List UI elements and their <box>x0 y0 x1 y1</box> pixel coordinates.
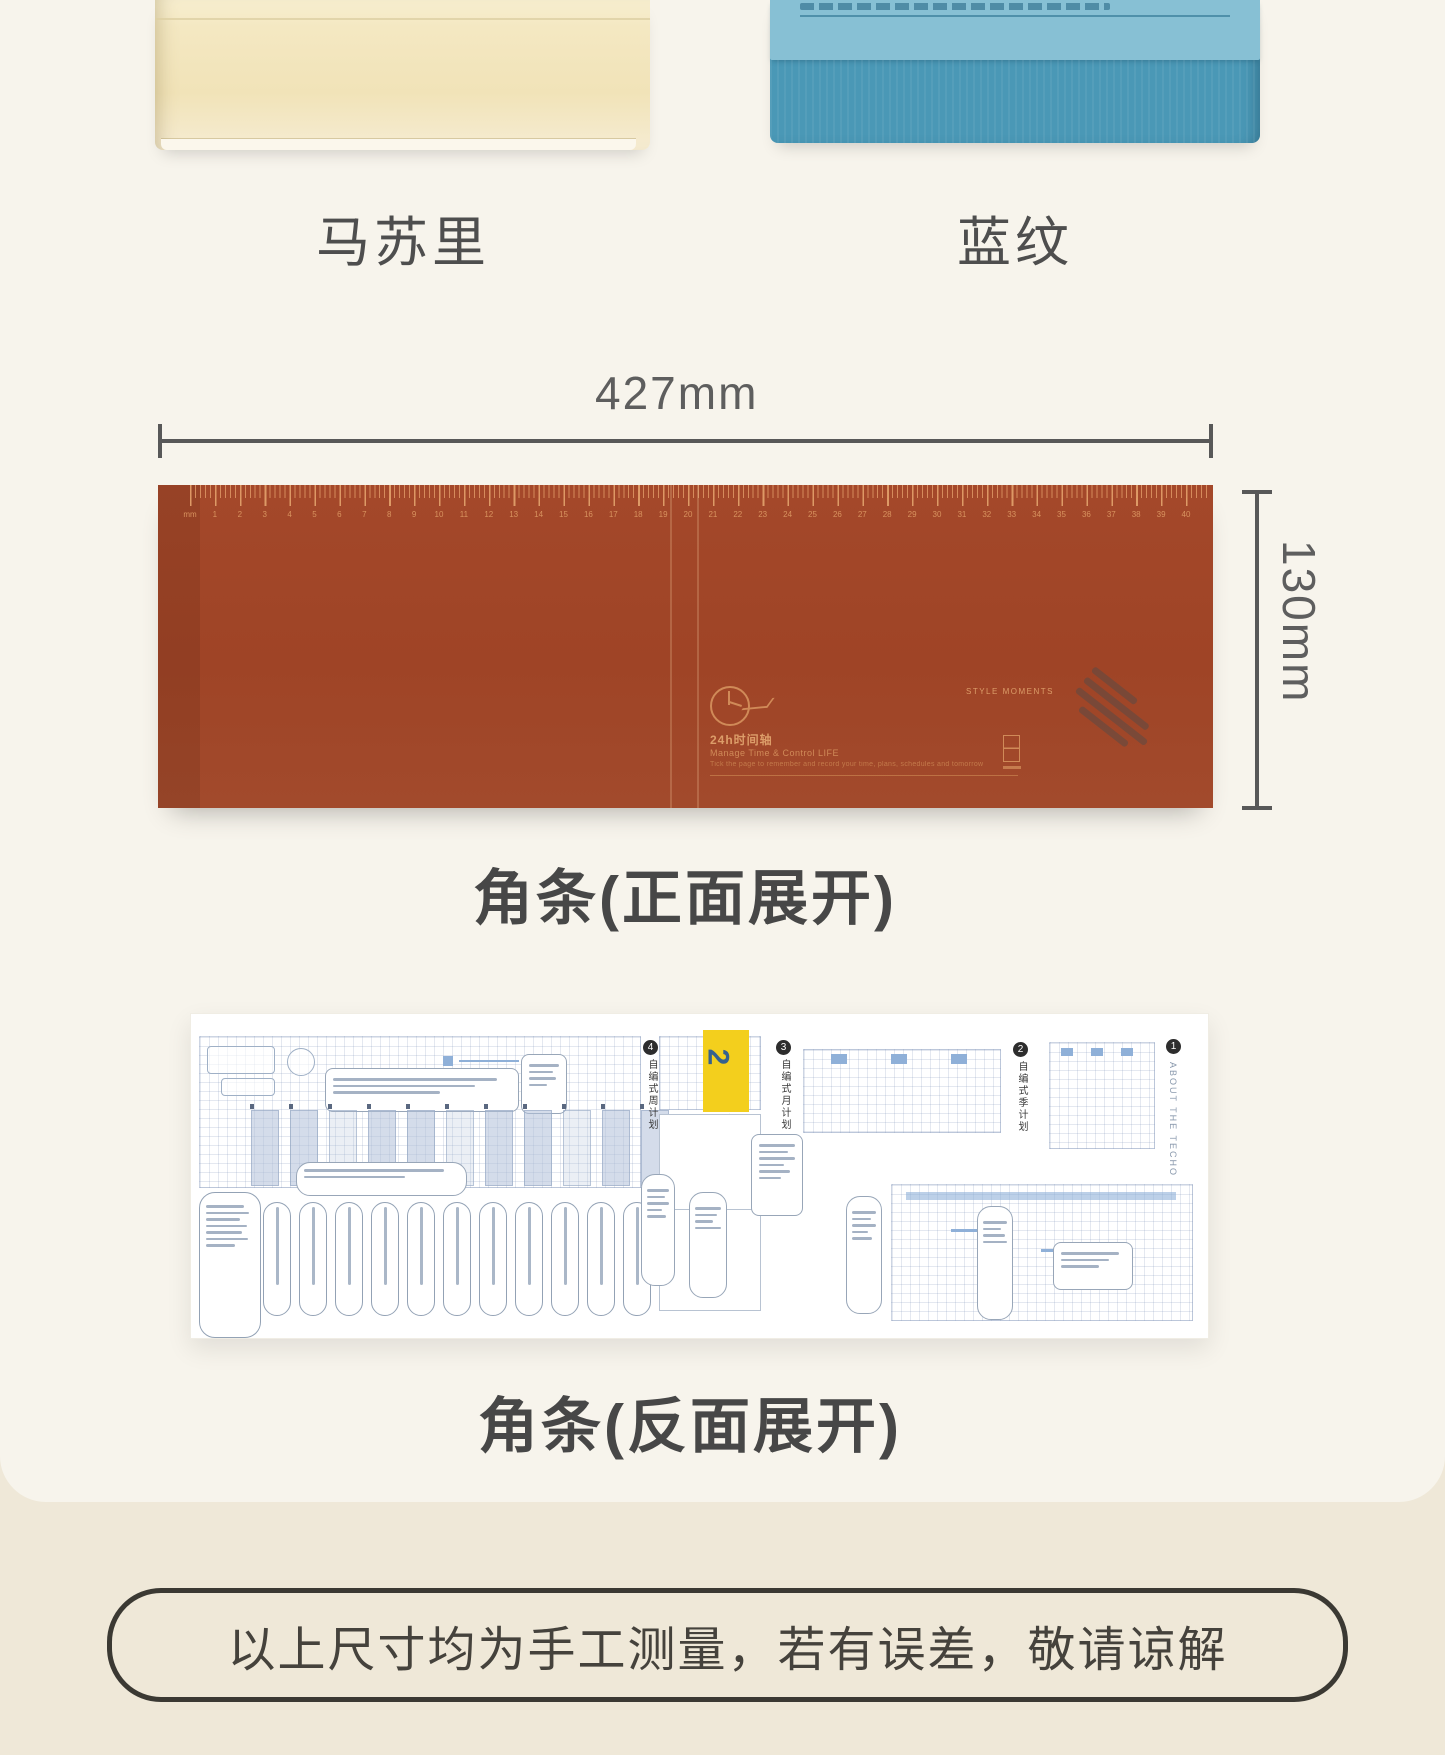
ruler-number: 15 <box>559 510 568 519</box>
sketch-box <box>207 1046 275 1074</box>
dots-row <box>250 1104 682 1109</box>
dimension-cap <box>1242 806 1272 810</box>
cover-crease <box>155 18 650 20</box>
table-header-mark <box>891 1054 907 1064</box>
ruler-number: 11 <box>460 510 468 519</box>
width-dimension-line <box>158 439 1213 443</box>
sketch-mark <box>443 1056 453 1066</box>
notebook-cream-photo <box>155 0 650 150</box>
ruler-number: 22 <box>733 510 742 519</box>
ruler-number: 16 <box>584 510 593 519</box>
tab-number: 2 <box>700 1049 734 1066</box>
sketch-circle <box>287 1048 315 1076</box>
callout-bubble <box>296 1162 467 1196</box>
schedule-column <box>602 1110 630 1186</box>
dimension-cap <box>158 424 162 458</box>
brand-seal-icon <box>1003 735 1020 762</box>
index-pill <box>263 1202 291 1316</box>
fold-line <box>697 485 699 808</box>
ruler-number: 31 <box>957 510 966 519</box>
ruler-number: 26 <box>833 510 842 519</box>
table-header-mark <box>831 1054 847 1064</box>
sketch-mark <box>459 1060 519 1062</box>
ruler-number: 38 <box>1132 510 1141 519</box>
ruler-number: 27 <box>858 510 867 519</box>
color-name-blue: 蓝纹 <box>865 198 1165 277</box>
sketch-box <box>221 1078 275 1096</box>
gray-stamp-watermark <box>1046 661 1169 783</box>
ruler-number: 34 <box>1032 510 1041 519</box>
table-header-mark <box>1091 1048 1103 1056</box>
index-pill <box>299 1202 327 1316</box>
ruler-number: 23 <box>758 510 767 519</box>
ruler-number: 9 <box>412 510 416 519</box>
ruler-number: 2 <box>238 510 242 519</box>
height-dimension-label: 130mm <box>1272 540 1326 703</box>
strip-brand-text: STYLE MOMENTS <box>966 687 1054 696</box>
callout-bubble <box>1053 1242 1133 1290</box>
notebook-blue-photo <box>770 0 1260 143</box>
ruler-number: 35 <box>1057 510 1066 519</box>
index-pill <box>407 1202 435 1316</box>
ruler-number: 30 <box>933 510 942 519</box>
ruler-number: mm <box>183 510 196 519</box>
vertical-callout <box>846 1196 882 1314</box>
ruler-number: 21 <box>708 510 717 519</box>
cover-flap <box>770 0 1260 60</box>
right-table-panel <box>1049 1042 1155 1149</box>
bottom-table-panel <box>891 1184 1193 1321</box>
ruler-number: 39 <box>1157 510 1166 519</box>
back-strip-caption: 角条(反面展开) <box>340 1378 1040 1465</box>
flap-print-line <box>800 15 1230 17</box>
ruler-number: 6 <box>337 510 341 519</box>
strip-fold-shade <box>158 485 200 808</box>
vertical-callout <box>641 1174 675 1286</box>
ruler-minor-ticks <box>190 485 1210 498</box>
ruler-number: 29 <box>908 510 917 519</box>
ruler-number: 10 <box>435 510 444 519</box>
ruler-number: 20 <box>684 510 693 519</box>
table-header-mark <box>1121 1048 1133 1056</box>
index-pill <box>443 1202 471 1316</box>
ruler-number: 28 <box>883 510 892 519</box>
ruler-number: 33 <box>1007 510 1016 519</box>
corner-strip-front: mm12345678910111213141516171819202122232… <box>158 485 1213 808</box>
front-strip-caption: 角条(正面展开) <box>335 850 1035 937</box>
yellow-number-tab: 2 <box>703 1030 749 1112</box>
vertical-callout <box>689 1192 727 1298</box>
index-pill <box>479 1202 507 1316</box>
ruler-number: 3 <box>262 510 266 519</box>
width-dimension-label: 427mm <box>595 366 758 420</box>
strip-print-rule <box>710 775 1018 776</box>
callout-bubble <box>751 1134 803 1216</box>
schedule-column <box>485 1110 513 1186</box>
cover-texture <box>770 60 1260 143</box>
ruler-number: 1 <box>213 510 217 519</box>
strip-print-subtitle: Manage Time & Control LIFE <box>710 748 839 758</box>
vertical-callout <box>977 1206 1013 1320</box>
ruler-number: 5 <box>312 510 316 519</box>
height-dimension-line <box>1255 492 1259 808</box>
brand-seal-caption <box>1003 766 1021 769</box>
ruler-number: 14 <box>534 510 543 519</box>
table-header-mark <box>1061 1048 1073 1056</box>
ruler-number: 19 <box>659 510 668 519</box>
table-header-mark <box>951 1054 967 1064</box>
ruler-number: 18 <box>634 510 643 519</box>
color-name-cream: 马苏里 <box>253 198 553 277</box>
schedule-column <box>251 1110 279 1186</box>
strip-print-note: Tick the page to remember and record you… <box>710 761 983 768</box>
about-the-techo-text: ABOUT THE TECHO <box>1168 1062 1178 1177</box>
ruler-number: 24 <box>783 510 792 519</box>
index-pill <box>335 1202 363 1316</box>
section-badge: 1 <box>1166 1039 1256 1054</box>
index-pill <box>551 1202 579 1316</box>
index-pill <box>515 1202 543 1316</box>
ruler-number: 4 <box>287 510 291 519</box>
measurement-disclaimer-text: 以上尺寸均为手工测量，若有误差，敬请谅解 <box>227 1610 1227 1680</box>
ruler-number: 40 <box>1182 510 1191 519</box>
measurement-disclaimer-box: 以上尺寸均为手工测量，若有误差，敬请谅解 <box>107 1588 1348 1702</box>
index-pill-large <box>199 1192 261 1338</box>
ruler-number: 8 <box>387 510 391 519</box>
ruler-number: 25 <box>808 510 817 519</box>
dimension-cap <box>1209 424 1213 458</box>
ruler-number: 12 <box>484 510 493 519</box>
strip-print-title: 24h时间轴 <box>710 731 773 748</box>
schedule-column <box>524 1110 552 1186</box>
ruler-number: 13 <box>509 510 518 519</box>
ruler-number: 17 <box>609 510 618 519</box>
page-edge <box>161 139 636 150</box>
table-header-band <box>906 1192 1176 1200</box>
index-pill <box>371 1202 399 1316</box>
ruler-number: 36 <box>1082 510 1091 519</box>
fold-line <box>670 485 672 808</box>
dimension-cap <box>1242 490 1272 494</box>
ruler-number: 32 <box>982 510 991 519</box>
flap-print-text <box>800 3 1110 10</box>
index-pill <box>587 1202 615 1316</box>
ruler-number: 7 <box>362 510 366 519</box>
corner-strip-back: 4 自编式周计划 2 3 自编式月计划 2 自编式季计划 1 ABOUT THE… <box>190 1013 1209 1339</box>
ruler-number: 37 <box>1107 510 1116 519</box>
schedule-column <box>563 1110 591 1186</box>
